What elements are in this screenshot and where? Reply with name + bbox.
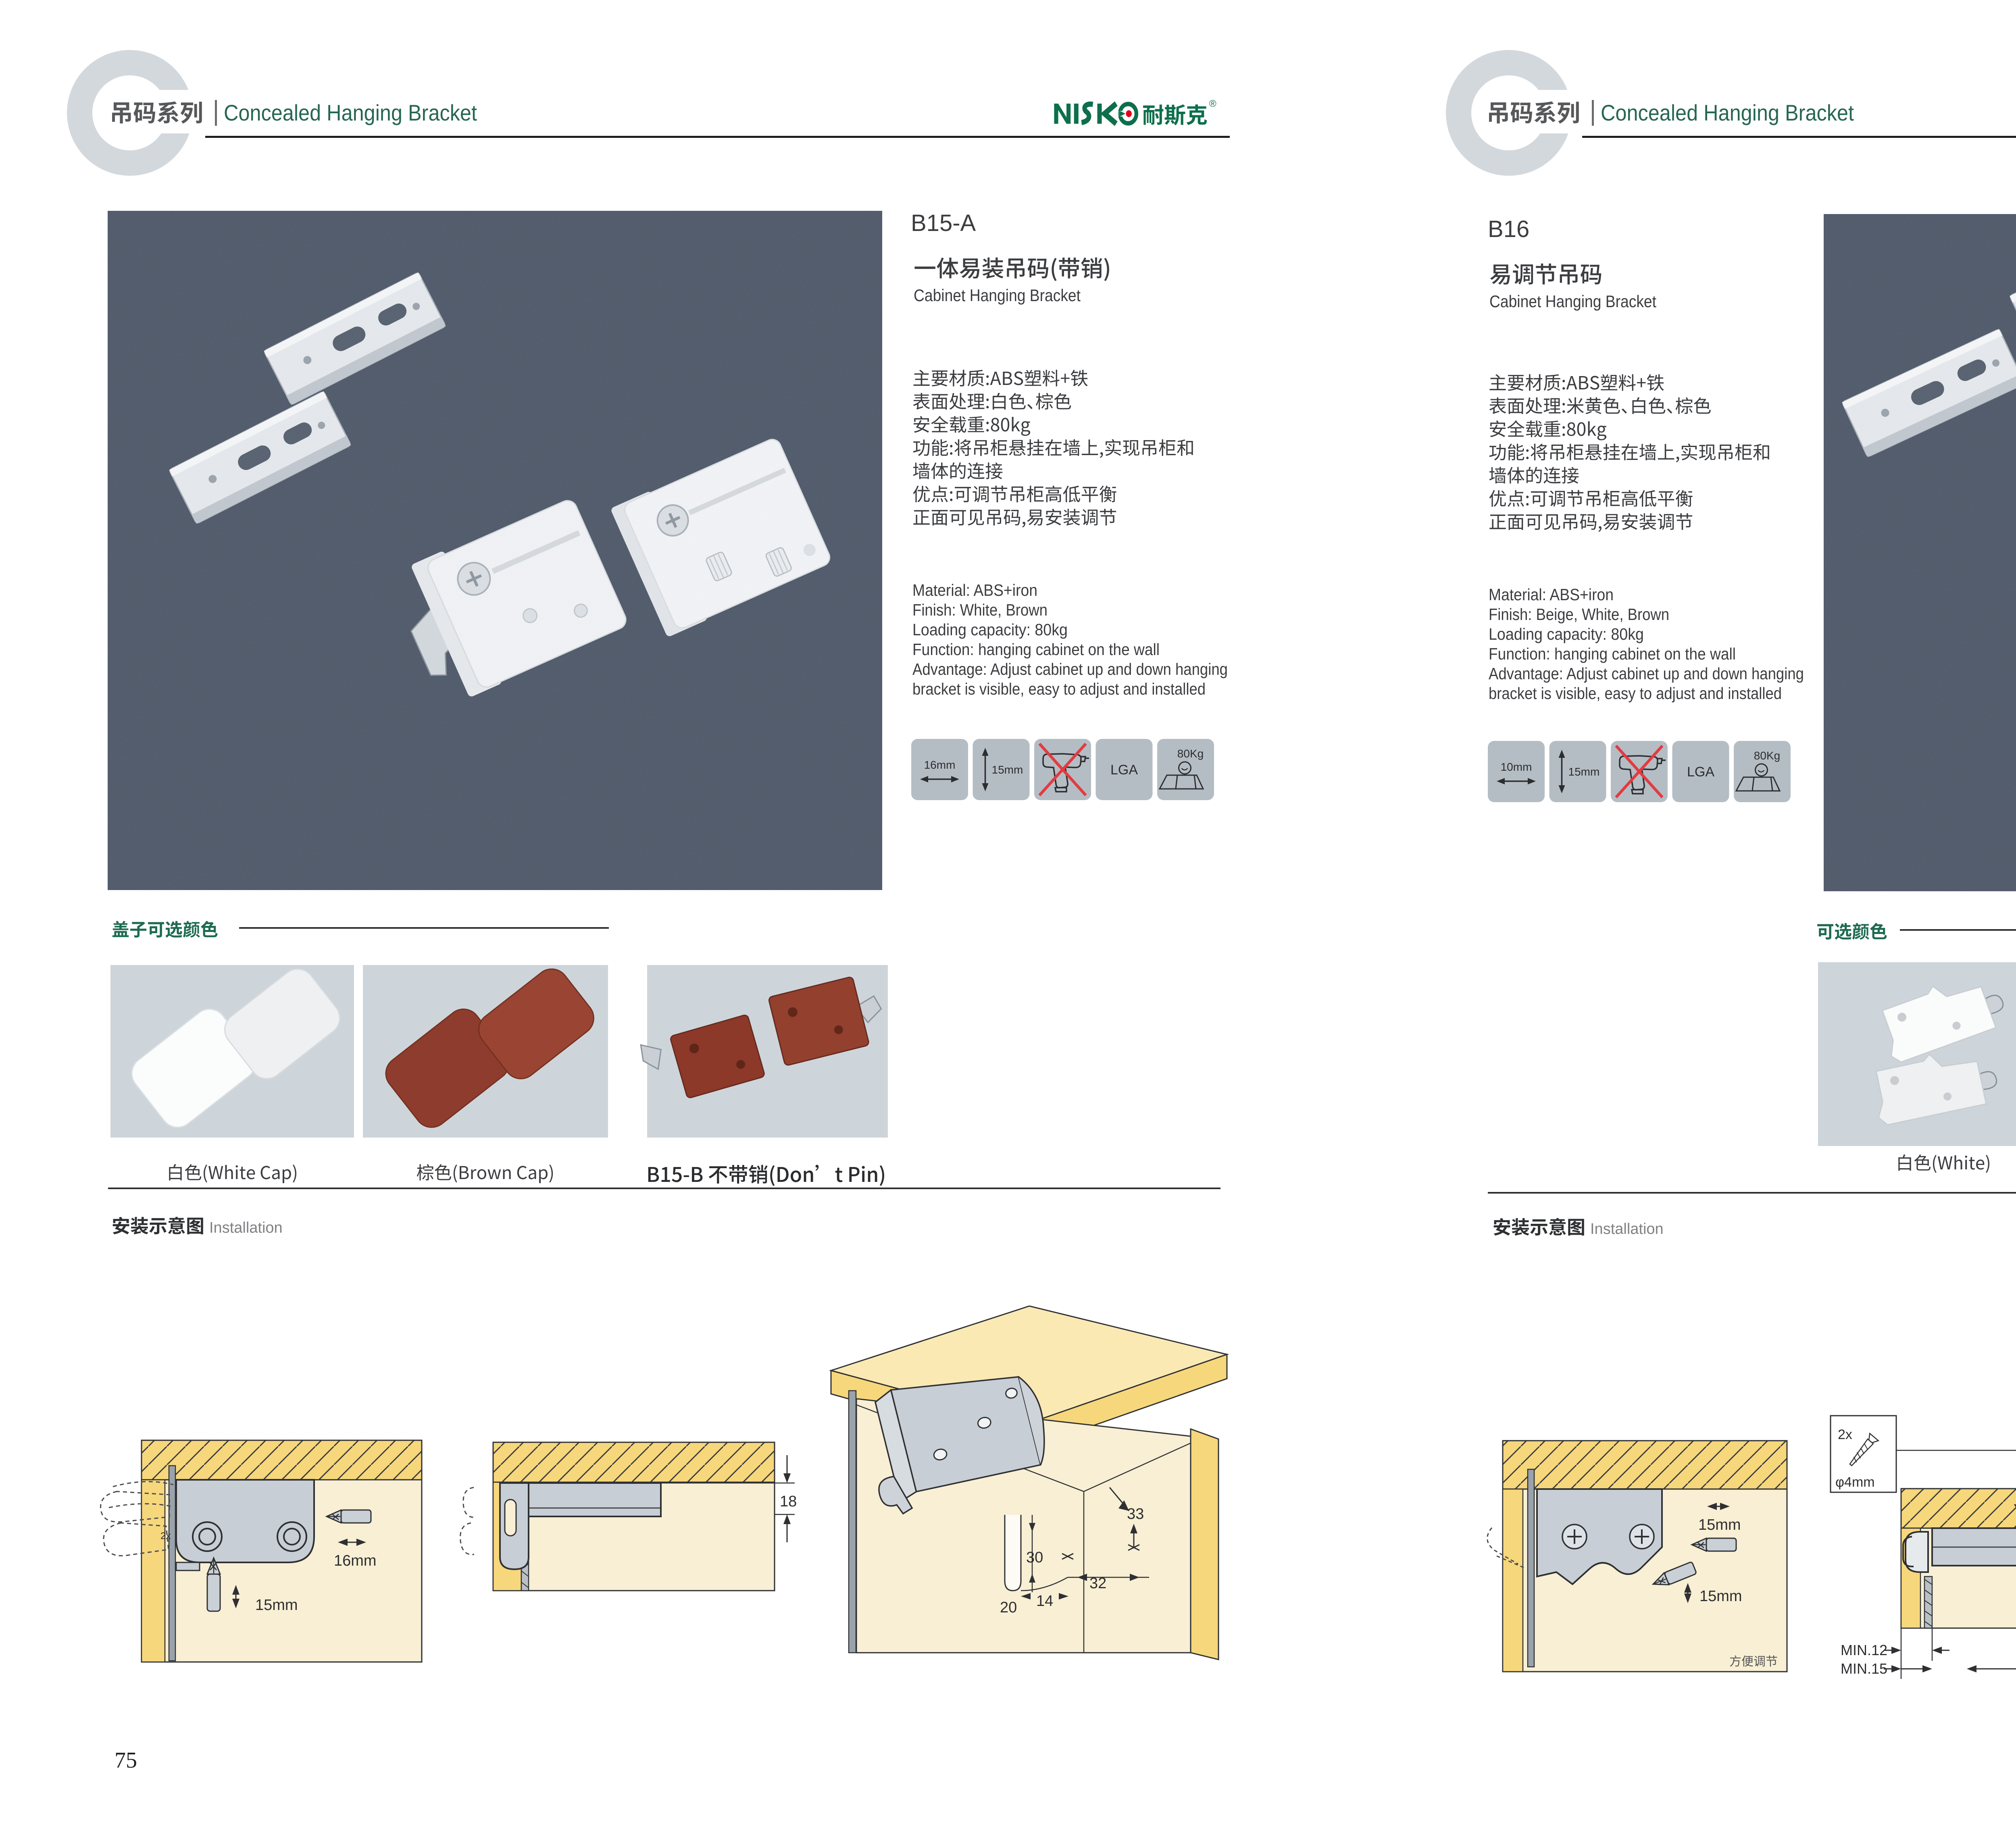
svg-text:Cabinet Hanging Bracket: Cabinet Hanging Bracket (914, 286, 1081, 305)
svg-text:Finish: Beige, White, Brown: Finish: Beige, White, Brown (1489, 605, 1669, 624)
svg-text:80Kg: 80Kg (1754, 749, 1780, 762)
svg-text:2x: 2x (160, 1531, 171, 1541)
svg-text:LGA: LGA (1687, 764, 1714, 780)
svg-text:15mm: 15mm (255, 1597, 298, 1614)
svg-text:Concealed Hanging Bracket: Concealed Hanging Bracket (224, 100, 477, 125)
svg-text:75: 75 (115, 1748, 137, 1773)
svg-text:15mm: 15mm (992, 763, 1023, 776)
svg-text:18: 18 (780, 1493, 797, 1510)
svg-text:80Kg: 80Kg (1177, 747, 1204, 760)
svg-text:30: 30 (1026, 1549, 1043, 1566)
svg-text:bracket is visible, easy to ad: bracket is visible, easy to adjust and i… (912, 680, 1206, 698)
svg-text:15mm: 15mm (1698, 1516, 1741, 1533)
svg-text:Cabinet Hanging Bracket: Cabinet Hanging Bracket (1489, 292, 1656, 311)
svg-text:Finish: White, Brown: Finish: White, Brown (912, 601, 1048, 619)
svg-text:B16: B16 (1488, 216, 1529, 242)
svg-text:15mm: 15mm (1568, 765, 1600, 778)
svg-text:Installation: Installation (209, 1219, 283, 1236)
svg-text:2x: 2x (1838, 1427, 1852, 1442)
svg-text:Loading capacity: 80kg: Loading capacity: 80kg (912, 620, 1068, 639)
svg-text:Material: ABS+iron: Material: ABS+iron (1489, 585, 1614, 604)
svg-text:MIN.12: MIN.12 (1841, 1642, 1887, 1658)
svg-text:Function: hanging cabinet on t: Function: hanging cabinet on the wall (912, 640, 1160, 659)
svg-text:bracket is visible, easy to ad: bracket is visible, easy to adjust and i… (1489, 684, 1782, 703)
svg-text:LGA: LGA (1110, 762, 1138, 778)
svg-text:Concealed Hanging Bracket: Concealed Hanging Bracket (1601, 100, 1854, 125)
svg-text:16mm: 16mm (334, 1552, 377, 1569)
svg-text:16mm: 16mm (924, 759, 956, 771)
svg-text:15mm: 15mm (1699, 1588, 1742, 1605)
svg-text:®: ® (1209, 98, 1216, 109)
svg-text:MIN.15: MIN.15 (1841, 1660, 1887, 1677)
svg-text:33: 33 (1127, 1506, 1144, 1523)
svg-text:Installation: Installation (1590, 1221, 1664, 1238)
svg-text:φ4mm: φ4mm (1835, 1475, 1875, 1490)
svg-text:Function: hanging cabinet on t: Function: hanging cabinet on the wall (1489, 645, 1736, 663)
svg-text:Loading capacity: 80kg: Loading capacity: 80kg (1489, 625, 1644, 643)
svg-text:14: 14 (1036, 1593, 1053, 1610)
svg-text:10mm: 10mm (1501, 761, 1532, 773)
svg-text:Advantage: Adjust cabinet up a: Advantage: Adjust cabinet up and down ha… (1489, 664, 1804, 683)
svg-text:20: 20 (1000, 1599, 1017, 1616)
svg-text:Material: ABS+iron: Material: ABS+iron (912, 581, 1037, 599)
svg-text:Advantage: Adjust cabinet up a: Advantage: Adjust cabinet up and down ha… (912, 660, 1228, 678)
svg-text:B15-A: B15-A (911, 210, 976, 236)
